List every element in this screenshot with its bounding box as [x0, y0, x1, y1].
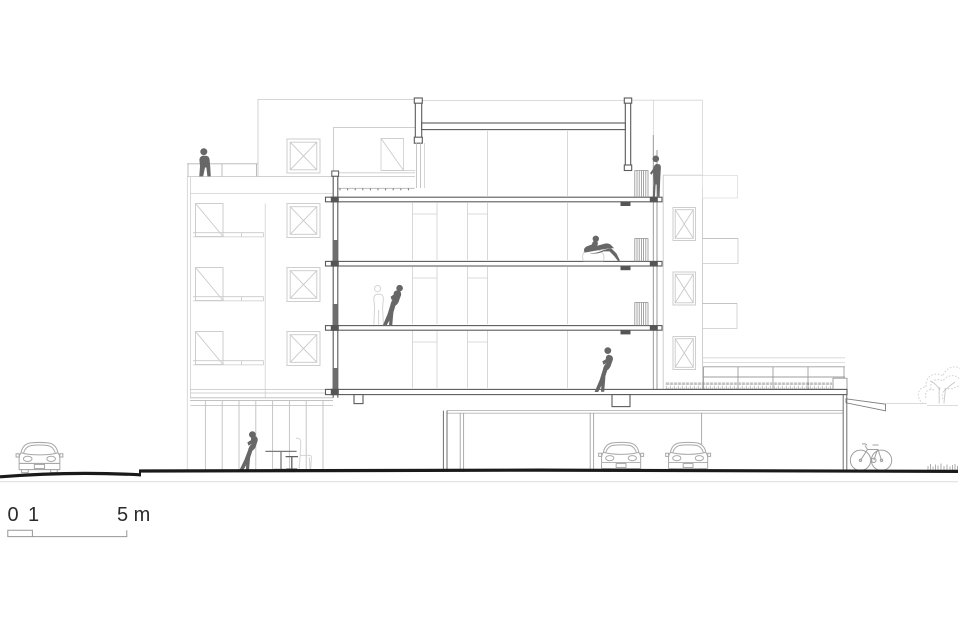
person-reclining-icon [583, 236, 620, 262]
scale-label-five-m: 5 m [117, 504, 150, 526]
scale-label-zero: 0 [8, 504, 19, 526]
penthouse-elevation-outline [258, 99, 417, 176]
scale-label-one: 1 [28, 504, 39, 526]
car-street-left [16, 442, 63, 472]
scale-bar: 0 1 5 m [8, 504, 151, 537]
ghost-figure-outline [374, 286, 384, 325]
roof-terrace-railing [187, 164, 258, 177]
tree-icon [918, 367, 960, 404]
cafe-stool [286, 457, 298, 469]
interior-partitions [413, 131, 568, 388]
person-leaning-first-floor-icon [595, 347, 613, 392]
figures [199, 148, 661, 470]
ghost-chair [296, 438, 312, 470]
car-garage-2 [666, 442, 711, 471]
building-section-svg: 0 1 5 m [0, 0, 960, 639]
facade-lines [187, 177, 333, 471]
person-roof-terrace-left-icon [199, 148, 211, 176]
ground-line [0, 470, 958, 482]
first-floor-band [190, 390, 333, 394]
bicycle-icon [850, 444, 891, 471]
right-wing-elevation [631, 100, 738, 389]
sloping-canopy [846, 399, 886, 411]
rear-ground-line [886, 404, 959, 406]
scale-bar-graphic [8, 530, 127, 536]
garage-columns [460, 413, 701, 472]
parking-garage [443, 395, 846, 472]
person-balcony-top-right-icon [650, 156, 661, 197]
floor-slabs [326, 197, 848, 406]
garage-ceiling [447, 411, 843, 414]
left-facade-elevation [187, 99, 417, 470]
section-drawing-sheet: 0 1 5 m [0, 0, 960, 639]
garage-right-wall [843, 395, 847, 472]
background-volume-lines [631, 100, 703, 175]
left-cut-wall [332, 171, 339, 398]
wing-balconies [703, 176, 739, 329]
car-garage-1 [599, 442, 644, 471]
person-leaning-second-floor-icon [374, 285, 403, 326]
terrace-deck-pads [340, 189, 408, 191]
penthouse-roof-structure [414, 98, 631, 171]
wing-windows [673, 208, 696, 370]
green-roof-planting [665, 382, 832, 389]
person-cafe-icon [239, 431, 258, 470]
roof-parapet-block [833, 378, 847, 389]
pergola-lines [703, 358, 845, 363]
green-roof-area [665, 358, 958, 411]
balcony-railings [635, 171, 649, 326]
garage-left-wall [443, 411, 447, 472]
penthouse-glazing-left [417, 143, 421, 188]
